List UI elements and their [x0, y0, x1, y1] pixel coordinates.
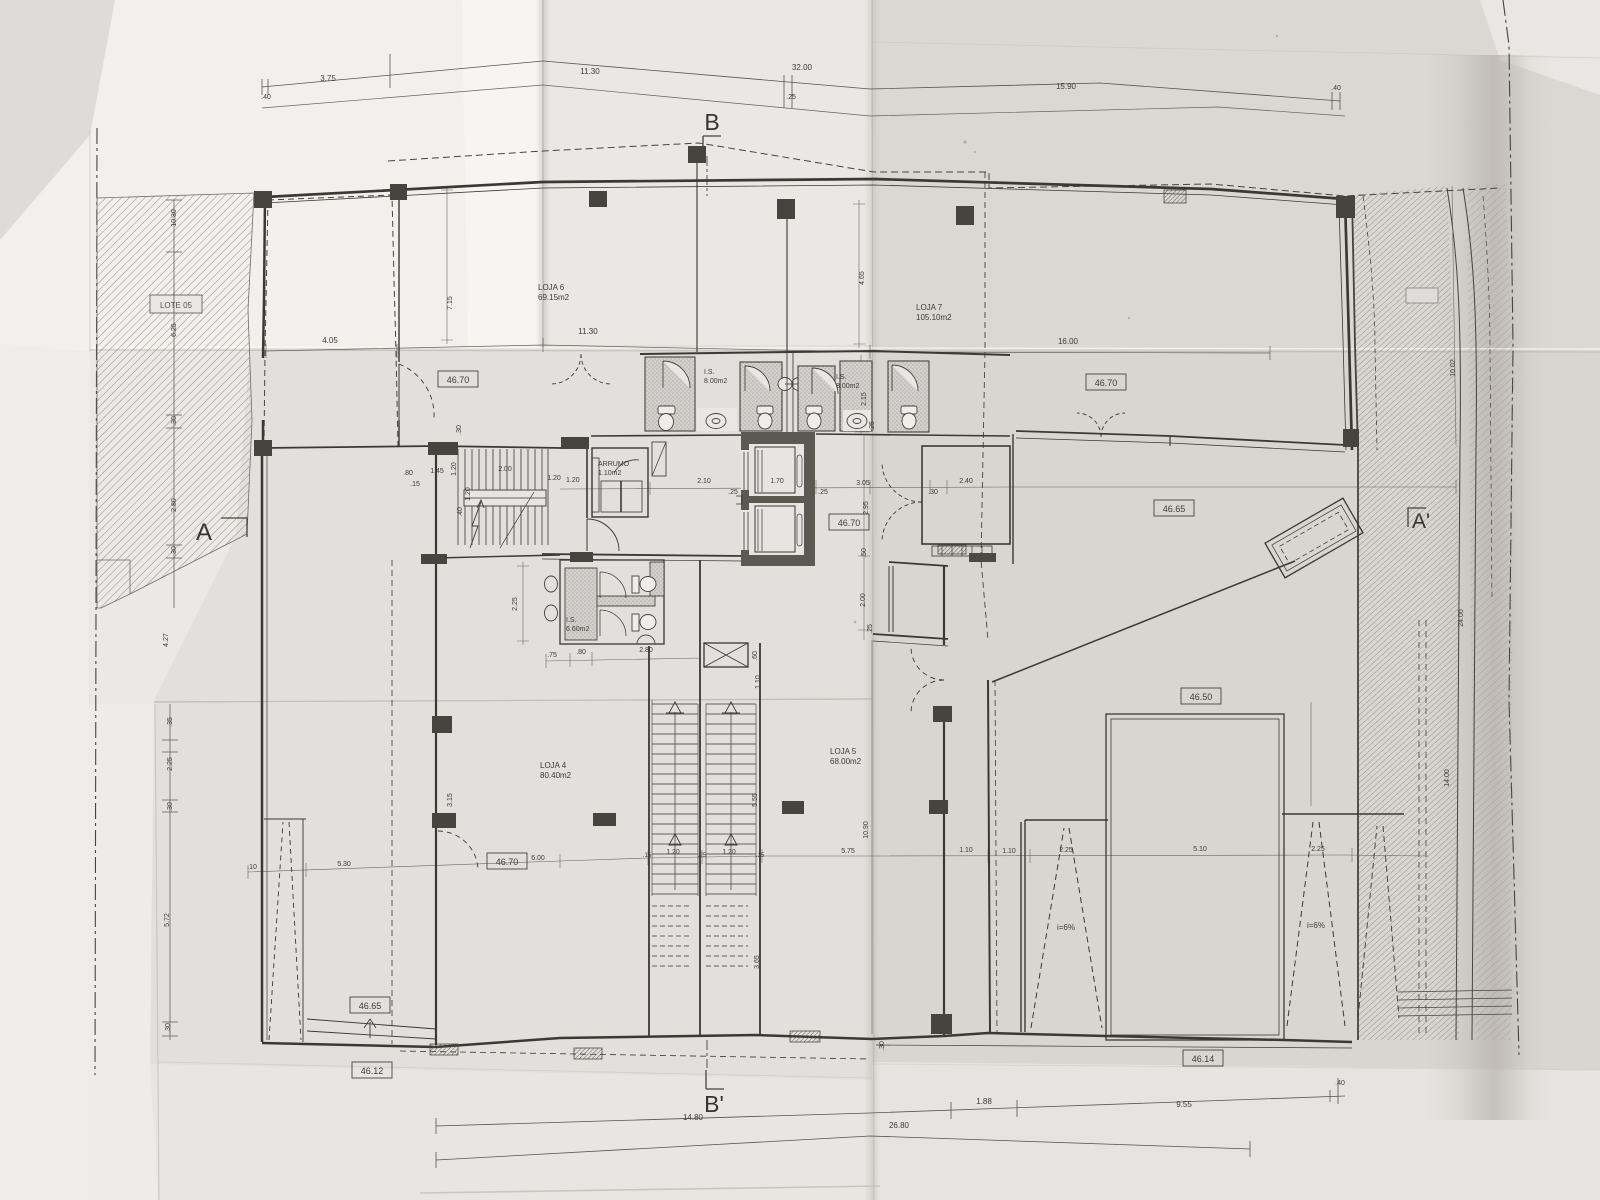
svg-text:.40: .40	[1331, 85, 1341, 92]
svg-text:1.88: 1.88	[976, 1097, 992, 1106]
svg-text:46.14: 46.14	[1192, 1054, 1215, 1064]
svg-text:.30: .30	[928, 489, 938, 496]
svg-text:14.80: 14.80	[683, 1113, 704, 1122]
svg-text:.25: .25	[869, 421, 876, 431]
svg-text:.80: .80	[403, 470, 413, 477]
svg-text:32.00: 32.00	[792, 63, 813, 72]
svg-text:.40: .40	[457, 507, 464, 517]
svg-text:24.00: 24.00	[1458, 609, 1465, 627]
svg-text:11.30: 11.30	[578, 327, 598, 336]
svg-text:46.70: 46.70	[838, 518, 861, 528]
svg-text:i=6%: i=6%	[1307, 921, 1325, 930]
svg-text:5.55: 5.55	[752, 793, 759, 807]
svg-text:10.30: 10.30	[171, 209, 178, 227]
svg-text:1.45: 1.45	[430, 468, 444, 475]
svg-text:.30: .30	[171, 416, 178, 426]
svg-text:3.65: 3.65	[754, 955, 761, 969]
svg-text:.15: .15	[410, 481, 420, 488]
svg-text:4.27: 4.27	[163, 633, 170, 647]
svg-text:46.12: 46.12	[361, 1066, 384, 1076]
svg-text:A': A'	[1412, 510, 1430, 533]
svg-text:i=6%: i=6%	[1057, 923, 1075, 932]
svg-text:.25: .25	[728, 489, 738, 496]
svg-text:.35: .35	[167, 717, 174, 727]
svg-text:.25: .25	[786, 94, 796, 101]
svg-text:LOJA 6: LOJA 6	[538, 283, 565, 292]
svg-text:8.00m2: 8.00m2	[704, 378, 727, 385]
svg-text:.30: .30	[456, 425, 463, 435]
svg-text:.80: .80	[576, 649, 586, 656]
svg-text:46.65: 46.65	[359, 1001, 382, 1011]
svg-text:2.80: 2.80	[639, 647, 653, 654]
svg-text:46.70: 46.70	[1095, 378, 1118, 388]
svg-text:1.70: 1.70	[770, 478, 784, 485]
svg-text:2.10: 2.10	[697, 478, 711, 485]
svg-text:3.05: 3.05	[856, 480, 870, 487]
svg-text:B': B'	[704, 1091, 724, 1117]
svg-text:1.20: 1.20	[666, 849, 680, 856]
svg-text:1.10: 1.10	[755, 675, 762, 689]
svg-text:46.70: 46.70	[447, 375, 470, 385]
svg-text:80.40m2: 80.40m2	[540, 771, 572, 780]
svg-text:2.80: 2.80	[171, 498, 178, 512]
svg-text:I.S.: I.S.	[836, 374, 847, 381]
svg-text:.30: .30	[171, 546, 178, 556]
svg-text:10.90: 10.90	[863, 821, 870, 839]
svg-text:LOJA 5: LOJA 5	[830, 747, 857, 756]
svg-text:5.75: 5.75	[841, 848, 855, 855]
svg-text:2.15: 2.15	[861, 392, 868, 406]
svg-text:.25: .25	[698, 853, 707, 859]
svg-text:46.65: 46.65	[1163, 504, 1186, 514]
svg-text:4.65: 4.65	[859, 271, 866, 285]
svg-text:A: A	[196, 519, 212, 546]
svg-text:6.25: 6.25	[171, 323, 178, 337]
svg-text:6.00: 6.00	[531, 855, 545, 862]
svg-text:1.20: 1.20	[566, 477, 580, 484]
svg-text:.50: .50	[861, 548, 868, 558]
svg-text:10.02: 10.02	[1450, 359, 1457, 377]
svg-text:3.15: 3.15	[447, 793, 454, 807]
svg-text:.30: .30	[165, 1023, 172, 1033]
svg-text:ARRUMO: ARRUMO	[598, 461, 630, 468]
svg-text:.30: .30	[167, 802, 174, 812]
svg-text:I.S.: I.S.	[566, 617, 577, 624]
svg-text:.75: .75	[547, 652, 557, 659]
svg-text:1.10: 1.10	[1002, 848, 1016, 855]
svg-text:3.75: 3.75	[320, 74, 336, 83]
svg-text:LOJA 7: LOJA 7	[916, 303, 943, 312]
svg-text:4.05: 4.05	[322, 336, 338, 345]
svg-text:2.25: 2.25	[1059, 847, 1073, 854]
svg-text:46.70: 46.70	[496, 857, 519, 867]
svg-text:.15: .15	[756, 853, 765, 859]
svg-text:7.15: 7.15	[447, 296, 454, 310]
svg-text:8.00m2: 8.00m2	[836, 383, 859, 390]
svg-text:2.40: 2.40	[959, 478, 973, 485]
svg-text:2.95: 2.95	[863, 501, 870, 515]
svg-text:69.15m2: 69.15m2	[538, 293, 570, 302]
svg-text:2.00: 2.00	[498, 466, 512, 473]
svg-text:2.00: 2.00	[860, 593, 867, 607]
svg-text:.10: .10	[247, 864, 257, 871]
svg-text:B: B	[704, 109, 719, 135]
svg-text:I.S.: I.S.	[704, 369, 715, 376]
svg-text:LOTE 05: LOTE 05	[160, 301, 193, 310]
svg-text:.30: .30	[879, 1041, 886, 1051]
svg-text:68.00m2: 68.00m2	[830, 757, 862, 766]
svg-text:26.80: 26.80	[889, 1121, 910, 1130]
svg-text:16.00: 16.00	[1058, 337, 1079, 346]
svg-text:.25: .25	[867, 624, 874, 634]
svg-text:5.72: 5.72	[164, 913, 171, 927]
svg-text:LOJA 4: LOJA 4	[540, 761, 567, 770]
svg-text:6.60m2: 6.60m2	[566, 626, 589, 633]
svg-text:1.20: 1.20	[547, 475, 561, 482]
svg-text:.15: .15	[643, 853, 652, 859]
svg-text:46.50: 46.50	[1190, 692, 1213, 702]
svg-text:105.10m2: 105.10m2	[916, 313, 952, 322]
svg-text:1.10m2: 1.10m2	[598, 470, 621, 477]
svg-text:1.20: 1.20	[722, 849, 736, 856]
svg-text:1.10: 1.10	[959, 847, 973, 854]
svg-text:.40: .40	[261, 94, 271, 101]
svg-text:15.90: 15.90	[1056, 82, 1077, 91]
svg-text:2.25: 2.25	[1311, 846, 1325, 853]
svg-text:1.20: 1.20	[465, 487, 472, 501]
svg-text:2.25: 2.25	[167, 757, 174, 771]
svg-text:5.10: 5.10	[1193, 846, 1207, 853]
svg-text:.25: .25	[818, 489, 828, 496]
svg-text:.40: .40	[1335, 1080, 1345, 1087]
svg-text:1.20: 1.20	[451, 462, 458, 476]
svg-text:11.30: 11.30	[580, 67, 600, 76]
svg-text:9.55: 9.55	[1176, 1100, 1192, 1109]
svg-text:14.00: 14.00	[1444, 769, 1451, 787]
svg-text:5.30: 5.30	[337, 861, 351, 868]
svg-text:.60: .60	[752, 651, 759, 661]
svg-text:2.25: 2.25	[512, 597, 519, 611]
